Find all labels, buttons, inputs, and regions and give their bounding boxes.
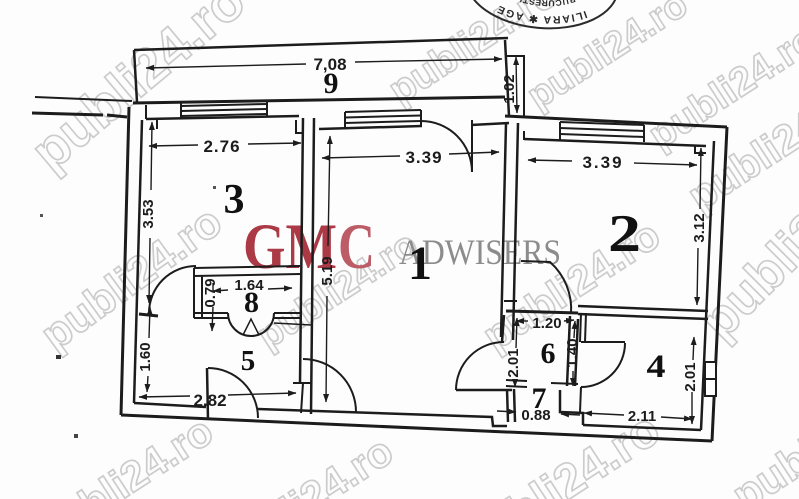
svg-text:1.60: 1.60 <box>137 342 154 371</box>
svg-text:6: 6 <box>541 337 556 370</box>
svg-text:C: C <box>338 211 375 283</box>
svg-text:3.12: 3.12 <box>691 213 708 242</box>
svg-text:2: 2 <box>608 205 641 263</box>
svg-text:1: 1 <box>408 237 432 290</box>
svg-text:2.01: 2.01 <box>682 362 699 391</box>
svg-text:2.01: 2.01 <box>505 348 522 377</box>
svg-text:5.19: 5.19 <box>319 256 336 285</box>
svg-text:3: 3 <box>224 177 245 223</box>
svg-text:publi24.ro: publi24.ro <box>27 407 221 499</box>
svg-text:2.76: 2.76 <box>203 137 240 156</box>
svg-text:3.39: 3.39 <box>582 153 623 172</box>
svg-text:0.79: 0.79 <box>202 278 219 307</box>
svg-text:1.64: 1.64 <box>234 277 264 294</box>
svg-text:1.40: 1.40 <box>564 338 581 367</box>
svg-text:9: 9 <box>324 67 339 100</box>
svg-text:5: 5 <box>241 345 256 377</box>
svg-text:0.88: 0.88 <box>521 407 550 424</box>
svg-text:2.82: 2.82 <box>193 391 226 410</box>
svg-text:3.53: 3.53 <box>140 199 157 228</box>
svg-text:publi24.ro: publi24.ro <box>207 427 401 499</box>
svg-text:1.20: 1.20 <box>532 315 561 332</box>
svg-text:publi24.ro: publi24.ro <box>724 365 799 499</box>
svg-text:4: 4 <box>647 349 666 385</box>
svg-text:1.02: 1.02 <box>501 74 518 103</box>
svg-text:2.11: 2.11 <box>628 408 656 425</box>
svg-text:3.39: 3.39 <box>405 148 442 167</box>
